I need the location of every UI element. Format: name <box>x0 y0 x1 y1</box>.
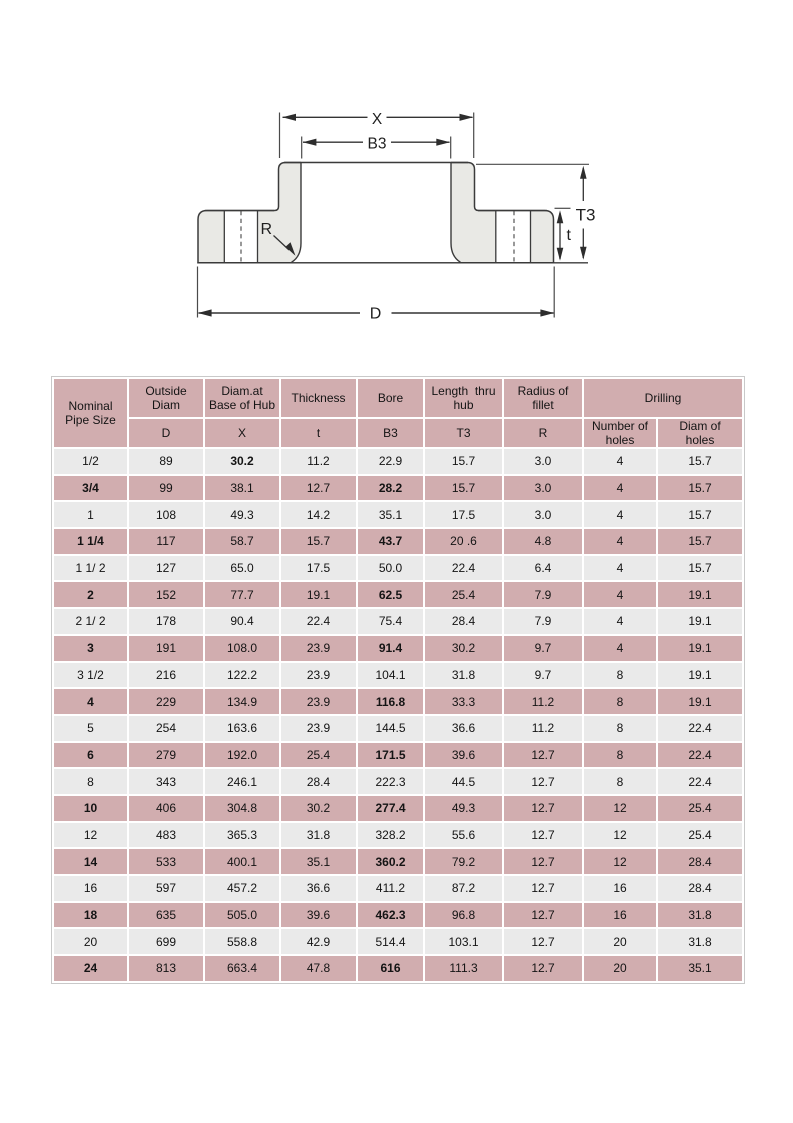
svg-text:R: R <box>261 221 273 238</box>
svg-text:t: t <box>567 227 572 244</box>
svg-text:D: D <box>370 306 382 323</box>
svg-text:X: X <box>372 111 383 128</box>
svg-text:B3: B3 <box>368 136 387 153</box>
svg-text:T3: T3 <box>576 206 596 225</box>
